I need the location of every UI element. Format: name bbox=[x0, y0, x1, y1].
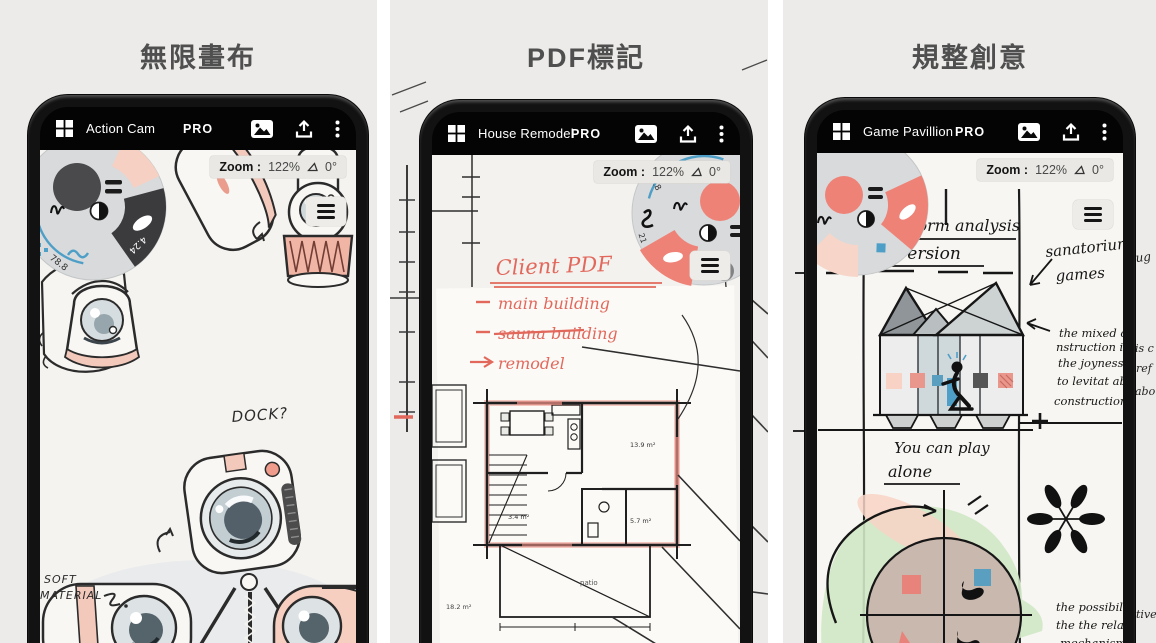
canvas-menu-button[interactable] bbox=[1073, 200, 1113, 229]
zoom-label: Zoom : bbox=[219, 160, 261, 174]
import-image-icon[interactable] bbox=[1018, 123, 1040, 141]
house-remodel-sketch: Client PDF main building sauna building … bbox=[432, 155, 740, 643]
camera-sketch-center bbox=[180, 447, 304, 577]
angle-value: 0° bbox=[325, 160, 337, 174]
zoom-label: Zoom : bbox=[603, 165, 645, 179]
panel-title: 無限畫布 bbox=[140, 36, 256, 75]
panel-unlimited-canvas: 無限畫布 Action Cam PRO bbox=[0, 0, 377, 643]
note-title: Client PDF bbox=[495, 252, 613, 280]
petal-fan-sketch bbox=[1027, 482, 1105, 556]
app-grid-icon[interactable] bbox=[448, 125, 465, 142]
canvas-menu-button[interactable] bbox=[306, 197, 346, 226]
play-note: alone bbox=[888, 462, 932, 481]
angle-icon bbox=[1074, 165, 1085, 175]
svg-text:the joyness' ref: the joyness' ref bbox=[1058, 356, 1123, 370]
zoom-status-pill[interactable]: Zoom : 122% 0° bbox=[977, 159, 1113, 181]
marketing-composite: 無限畫布 Action Cam PRO bbox=[0, 0, 1156, 643]
panel-pdf-markup: PDF標記 House Remodel PRO bbox=[390, 0, 768, 643]
patio-label: patio bbox=[580, 579, 598, 587]
play-note: You can play bbox=[894, 439, 990, 457]
overflow-menu-icon[interactable] bbox=[335, 120, 340, 138]
zoom-value: 122% bbox=[652, 165, 684, 179]
project-title[interactable]: House Remodel bbox=[478, 126, 574, 141]
room-area-label: 13.9 m² bbox=[630, 441, 656, 449]
panel-organize-ideas: 規整創意 ug is c ref abo tive Game Pavillion… bbox=[783, 0, 1156, 643]
bottom-paragraph: the possibility of the the relative mech… bbox=[1056, 600, 1123, 643]
project-title[interactable]: Game Pavillion bbox=[863, 124, 953, 139]
margin-paragraph: the mixed co nstruction is c the joyness… bbox=[1054, 326, 1123, 408]
drawing-canvas[interactable]: Zoom : 122% 0° The form bbox=[817, 153, 1123, 643]
zoom-label: Zoom : bbox=[986, 163, 1028, 177]
svg-text:to levitat abo: to levitat abo bbox=[1057, 374, 1123, 388]
round-plan-sketch bbox=[821, 481, 1043, 643]
overflow-menu-icon[interactable] bbox=[1102, 123, 1107, 141]
drawing-canvas[interactable]: Zoom : 122% 0° bbox=[432, 155, 740, 643]
app-toolbar: Game Pavillion PRO bbox=[817, 110, 1123, 153]
pro-badge: PRO bbox=[571, 127, 601, 141]
import-image-icon[interactable] bbox=[251, 120, 273, 138]
zoom-value: 122% bbox=[1035, 163, 1067, 177]
spill-word: ug bbox=[1135, 249, 1152, 265]
import-image-icon[interactable] bbox=[635, 125, 657, 143]
export-icon[interactable] bbox=[678, 124, 698, 144]
room-area-label: 5.7 m² bbox=[630, 517, 652, 525]
pro-badge: PRO bbox=[955, 125, 985, 139]
svg-text:construction.: construction. bbox=[1054, 394, 1123, 408]
margin-note: games bbox=[1055, 264, 1106, 285]
tool-wheel[interactable]: 4.24 78.8 bbox=[40, 150, 166, 280]
spill-word: tive bbox=[1136, 608, 1156, 621]
app-grid-icon[interactable] bbox=[56, 120, 73, 137]
spill-word: ref bbox=[1136, 362, 1154, 375]
angle-value: 0° bbox=[1092, 163, 1104, 177]
export-icon[interactable] bbox=[1061, 122, 1081, 142]
angle-value: 0° bbox=[709, 165, 721, 179]
phone-screen: House Remodel PRO bbox=[432, 112, 740, 643]
svg-text:the possibility of: the possibility of bbox=[1056, 600, 1123, 614]
project-title[interactable]: Action Cam bbox=[86, 121, 155, 136]
arrow-curl bbox=[158, 532, 170, 552]
svg-text:the mixed co: the mixed co bbox=[1059, 326, 1123, 340]
angle-icon bbox=[691, 167, 702, 177]
app-toolbar: House Remodel PRO bbox=[432, 112, 740, 155]
phone-frame: Action Cam PRO bbox=[28, 95, 368, 643]
pavilion-sketch bbox=[873, 283, 1028, 428]
svg-text:the the relative: the the relative bbox=[1056, 618, 1123, 632]
zoom-status-pill[interactable]: Zoom : 122% 0° bbox=[210, 156, 346, 178]
pro-badge: PRO bbox=[183, 122, 213, 136]
spill-word: is c bbox=[1135, 342, 1154, 355]
panel-title: PDF標記 bbox=[527, 36, 645, 75]
svg-text:nstruction is c: nstruction is c bbox=[1056, 340, 1123, 354]
canvas-menu-button[interactable] bbox=[690, 251, 730, 280]
drawing-canvas[interactable]: Zoom : 122% 0° bbox=[40, 150, 356, 643]
phone-screen: Action Cam PRO bbox=[40, 107, 356, 643]
phone-frame: Game Pavillion PRO bbox=[805, 98, 1135, 643]
export-icon[interactable] bbox=[294, 119, 314, 139]
spill-word: abo bbox=[1135, 385, 1156, 398]
svg-text:mechanisms: mechanisms bbox=[1060, 636, 1123, 643]
overflow-menu-icon[interactable] bbox=[719, 125, 724, 143]
material-annotation-line2: MATERIAL bbox=[40, 589, 102, 602]
material-annotation-line1: SOFT bbox=[44, 573, 77, 586]
angle-icon bbox=[307, 162, 318, 172]
zoom-value: 122% bbox=[268, 160, 300, 174]
note-item: main building bbox=[498, 294, 610, 313]
area-note: 18.2 m² bbox=[446, 603, 472, 611]
app-toolbar: Action Cam PRO bbox=[40, 107, 356, 150]
zoom-status-pill[interactable]: Zoom : 122% 0° bbox=[594, 161, 730, 183]
margin-note: sanatorium bbox=[1045, 234, 1123, 261]
panel-title: 規整創意 bbox=[912, 36, 1028, 75]
dock-annotation: DOCK? bbox=[231, 404, 289, 426]
app-grid-icon[interactable] bbox=[833, 123, 850, 140]
room-area-label: 3.4 m² bbox=[508, 513, 530, 521]
phone-frame: House Remodel PRO bbox=[420, 100, 752, 643]
note-item: remodel bbox=[498, 354, 565, 373]
phone-screen: Game Pavillion PRO bbox=[817, 110, 1123, 643]
